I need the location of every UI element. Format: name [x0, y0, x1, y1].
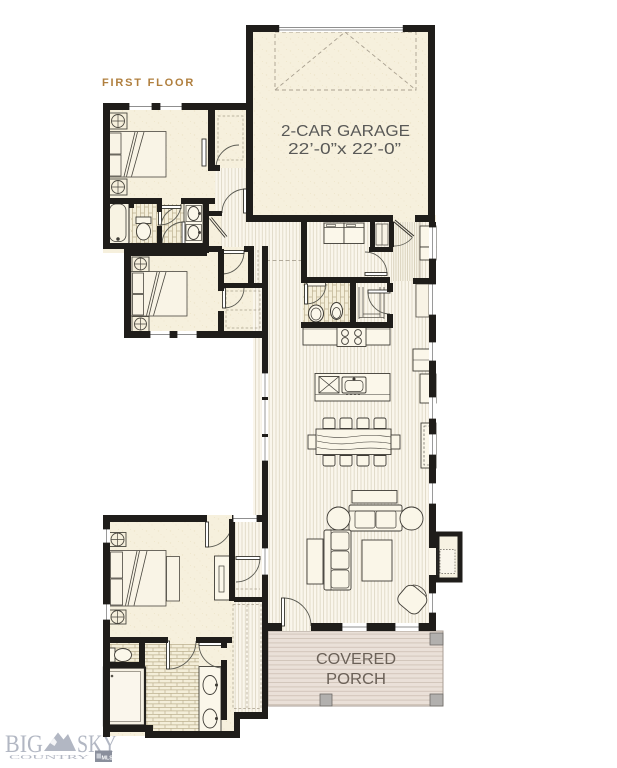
svg-text:22’-0”x 22’-0”: 22’-0”x 22’-0” [288, 141, 401, 158]
svg-text:2-CAR GARAGE: 2-CAR GARAGE [281, 123, 410, 140]
svg-text:BIG: BIG [5, 731, 43, 758]
svg-text:MLS: MLS [102, 755, 114, 761]
svg-text:COUNTRY: COUNTRY [9, 755, 91, 761]
svg-text:PORCH: PORCH [326, 671, 386, 688]
svg-text:FIRST FLOOR: FIRST FLOOR [102, 77, 195, 89]
svg-text:COVERED: COVERED [316, 651, 396, 668]
